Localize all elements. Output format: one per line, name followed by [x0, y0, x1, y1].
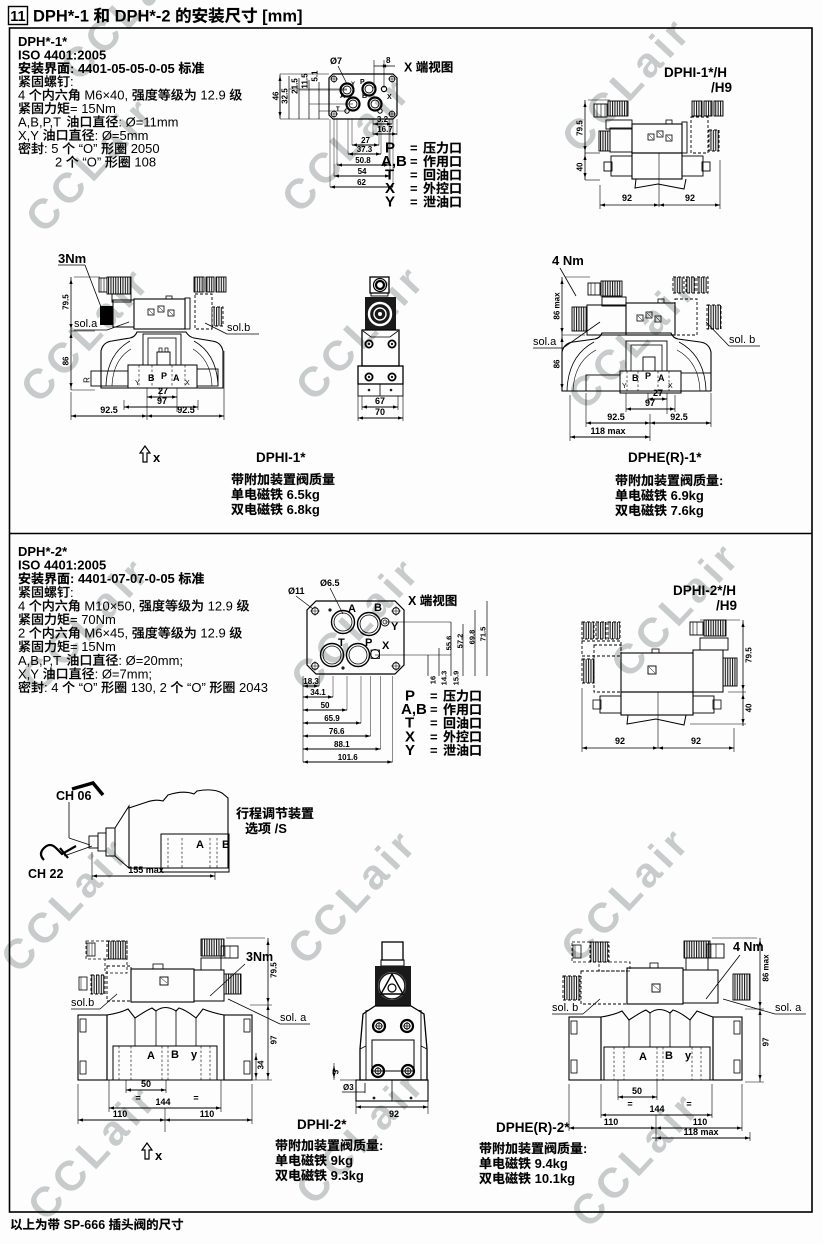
svg-text:67: 67 — [375, 396, 385, 406]
svg-text:T: T — [336, 107, 340, 113]
svg-text:16.7: 16.7 — [377, 125, 393, 134]
svg-text:9.3kg: 9.3kg — [327, 1168, 364, 1183]
svg-text:50: 50 — [141, 1079, 151, 1089]
svg-text:=: = — [410, 195, 418, 210]
svg-text:Ø11: Ø11 — [288, 586, 305, 596]
svg-text:Ø6.5: Ø6.5 — [320, 578, 340, 588]
svg-text:97: 97 — [270, 1035, 279, 1044]
svg-text:DPHI-1*/H: DPHI-1*/H — [664, 65, 727, 80]
svg-text:71.5: 71.5 — [478, 627, 487, 642]
svg-text:X: X — [404, 61, 416, 75]
svg-text:4: 4 — [18, 88, 29, 103]
svg-text:97: 97 — [762, 1037, 771, 1046]
svg-text:144: 144 — [156, 1097, 171, 1107]
svg-text:9kg: 9kg — [327, 1153, 353, 1168]
svg-text:7.6kg: 7.6kg — [667, 503, 704, 518]
svg-text:79.5: 79.5 — [270, 962, 279, 978]
svg-text:79.5: 79.5 — [745, 647, 754, 663]
svg-text:/S: /S — [271, 821, 287, 836]
svg-text:X,Y: X,Y — [18, 666, 42, 681]
svg-text:DPHE(R)-2*: DPHE(R)-2* — [496, 1120, 570, 1135]
svg-text:=: = — [193, 1093, 198, 1103]
svg-text:65.9: 65.9 — [324, 714, 340, 723]
svg-text:92.5: 92.5 — [100, 405, 118, 415]
svg-text:: 4401-07-07-0-05: : 4401-07-07-0-05 — [70, 571, 178, 586]
svg-text:50: 50 — [321, 701, 330, 710]
svg-text:A: A — [147, 1050, 155, 1062]
svg-text:Ø3: Ø3 — [343, 1083, 354, 1092]
svg-text:6.8kg: 6.8kg — [283, 502, 320, 517]
svg-text:A: A — [639, 1051, 647, 1063]
svg-text:92: 92 — [389, 1109, 399, 1119]
svg-text:92: 92 — [691, 736, 701, 746]
svg-text:=: = — [135, 1093, 140, 1103]
svg-text:=: = — [686, 1099, 691, 1109]
svg-text:2043: 2043 — [235, 680, 268, 695]
svg-text:B: B — [222, 839, 230, 851]
svg-text:4 Nm: 4 Nm — [552, 253, 584, 268]
svg-text:92.5: 92.5 — [607, 412, 625, 422]
svg-text:11.5: 11.5 — [301, 73, 310, 89]
svg-text:27: 27 — [158, 386, 168, 396]
svg-text:y: y — [685, 1050, 692, 1062]
svg-text:3.2: 3.2 — [377, 115, 389, 124]
svg-text:CH 22: CH 22 — [28, 867, 63, 881]
svg-text:X: X — [387, 94, 392, 101]
svg-text:79.5: 79.5 — [62, 294, 71, 310]
svg-text:R: R — [83, 377, 92, 383]
svg-text:11: 11 — [10, 9, 25, 25]
svg-text:DPH*-1: DPH*-1 — [33, 8, 94, 26]
svg-text:46: 46 — [272, 91, 281, 100]
svg-text:X: X — [185, 380, 190, 387]
svg-text:X: X — [408, 594, 420, 608]
svg-text::: : — [719, 473, 723, 488]
svg-text:y: y — [191, 1049, 198, 1061]
svg-text:57.2: 57.2 — [455, 634, 464, 649]
svg-text:P: P — [645, 371, 651, 381]
svg-text:B: B — [148, 373, 155, 383]
svg-text:76.6: 76.6 — [329, 727, 345, 736]
svg-text:/H9: /H9 — [716, 598, 737, 613]
svg-text:2: 2 — [18, 626, 29, 641]
svg-text:Y: Y — [405, 742, 415, 759]
svg-text:62: 62 — [357, 178, 366, 187]
svg-text:79.5: 79.5 — [576, 120, 585, 136]
svg-text:P: P — [161, 371, 167, 381]
svg-text:92: 92 — [685, 193, 695, 203]
svg-text:sol.a: sol.a — [533, 336, 557, 348]
svg-text::: : — [70, 585, 74, 600]
svg-text:“O”: “O” — [183, 680, 209, 695]
svg-text:110: 110 — [113, 1109, 128, 1119]
svg-text:B: B — [362, 93, 367, 100]
svg-text:155 max: 155 max — [128, 865, 164, 875]
svg-text:= 15Nm: = 15Nm — [70, 101, 116, 116]
svg-text:Y: Y — [391, 621, 399, 633]
svg-text:4 Nm: 4 Nm — [733, 940, 764, 954]
svg-text:sol. a: sol. a — [775, 1002, 802, 1014]
svg-text:86 max: 86 max — [553, 292, 562, 320]
svg-text:6.9kg: 6.9kg — [667, 488, 704, 503]
svg-text:x: x — [153, 450, 161, 465]
svg-text:[mm]: [mm] — [258, 8, 303, 26]
svg-text:110: 110 — [693, 1117, 708, 1127]
svg-text:69.8: 69.8 — [467, 630, 476, 645]
svg-text:130, 2: 130, 2 — [127, 680, 170, 695]
svg-text:118 max: 118 max — [591, 426, 626, 436]
svg-text:37.3: 37.3 — [357, 145, 373, 154]
svg-text:27: 27 — [361, 136, 370, 145]
svg-text:A: A — [173, 373, 180, 383]
svg-text:110: 110 — [200, 1109, 215, 1119]
svg-text:70: 70 — [375, 407, 385, 417]
svg-text:Y: Y — [622, 383, 627, 390]
svg-text:92: 92 — [622, 193, 632, 203]
svg-text:sol.b: sol.b — [227, 322, 250, 334]
svg-text:97: 97 — [645, 398, 655, 408]
svg-text:A: A — [196, 839, 204, 851]
svg-text:34: 34 — [257, 1060, 266, 1069]
svg-text:8: 8 — [386, 56, 391, 65]
svg-text:Ø7: Ø7 — [330, 56, 342, 66]
svg-text:4: 4 — [18, 598, 29, 613]
svg-text:DPH*-2: DPH*-2 — [110, 8, 175, 26]
svg-text:27: 27 — [653, 388, 663, 398]
svg-text:97: 97 — [157, 396, 167, 406]
svg-text:DPHI-2*/H: DPHI-2*/H — [673, 583, 736, 598]
svg-text:X: X — [382, 640, 390, 652]
svg-text:92.5: 92.5 — [670, 412, 688, 422]
svg-text:3Nm: 3Nm — [246, 950, 273, 964]
svg-text:CH 06: CH 06 — [56, 789, 91, 803]
svg-text::: : — [379, 1138, 383, 1153]
svg-text:40: 40 — [576, 162, 585, 171]
svg-text:14.3: 14.3 — [439, 671, 448, 686]
svg-text:3Nm: 3Nm — [58, 251, 86, 266]
svg-text:B: B — [374, 602, 382, 614]
svg-text:=: = — [430, 743, 438, 758]
svg-text:DPHE(R)-1*: DPHE(R)-1* — [628, 450, 702, 465]
svg-text:110: 110 — [604, 1117, 619, 1127]
svg-text:sol. b: sol. b — [729, 334, 755, 346]
svg-text:16: 16 — [428, 676, 437, 684]
svg-text:DPHI-2*: DPHI-2* — [297, 1117, 347, 1132]
svg-text:x: x — [155, 1148, 163, 1163]
svg-text:DPHI-1*: DPHI-1* — [256, 450, 306, 465]
svg-text:12.9: 12.9 — [204, 598, 237, 613]
svg-text:92.5: 92.5 — [177, 405, 195, 415]
svg-text:50.8: 50.8 — [355, 156, 371, 165]
svg-text:B: B — [665, 1050, 673, 1062]
svg-text:21.5: 21.5 — [291, 78, 300, 94]
svg-text:“O”: “O” — [79, 155, 105, 170]
svg-text:A: A — [340, 93, 345, 100]
svg-text:P: P — [365, 637, 372, 649]
svg-text:A: A — [658, 373, 665, 383]
svg-text:sol. b: sol. b — [552, 1002, 578, 1014]
svg-text:108: 108 — [131, 155, 156, 170]
svg-text:86 max: 86 max — [762, 954, 771, 982]
svg-text:86: 86 — [62, 356, 71, 365]
svg-text:“O”: “O” — [75, 680, 101, 695]
svg-text:SP-666: SP-666 — [60, 1218, 109, 1232]
svg-text:10.1kg: 10.1kg — [531, 1171, 575, 1186]
svg-text:86: 86 — [553, 359, 562, 368]
svg-text:18.3: 18.3 — [303, 677, 319, 686]
svg-text:= 15Nm: = 15Nm — [70, 639, 116, 654]
svg-text:118 max: 118 max — [684, 1127, 719, 1137]
svg-text:X,Y: X,Y — [18, 128, 42, 143]
svg-text:Y: Y — [385, 194, 395, 211]
svg-text:P: P — [360, 79, 365, 86]
svg-text:55.6: 55.6 — [444, 636, 453, 651]
svg-text:sol.a: sol.a — [74, 318, 98, 330]
svg-text:6.5kg: 6.5kg — [283, 487, 320, 502]
svg-text:/H9: /H9 — [711, 80, 732, 95]
svg-text:: 4401-05-05-0-05: : 4401-05-05-0-05 — [70, 61, 178, 76]
svg-text:50: 50 — [632, 1086, 642, 1096]
svg-text:12.9: 12.9 — [197, 88, 230, 103]
svg-text:=: = — [627, 1099, 632, 1109]
svg-text:54: 54 — [358, 167, 367, 176]
svg-text:101.6: 101.6 — [338, 753, 359, 762]
svg-text::: : — [70, 74, 74, 89]
svg-text:2: 2 — [55, 155, 66, 170]
svg-text:sol. a: sol. a — [280, 1012, 307, 1024]
svg-text:: 4: : 4 — [44, 680, 62, 695]
svg-text:40: 40 — [745, 703, 754, 712]
svg-text:Y: Y — [351, 82, 355, 88]
svg-text:92: 92 — [615, 736, 625, 746]
svg-text:15.9: 15.9 — [451, 671, 460, 686]
svg-text:5.1: 5.1 — [311, 70, 320, 82]
svg-text:A: A — [348, 603, 356, 615]
svg-text:sol.b: sol.b — [71, 997, 94, 1009]
svg-text:T: T — [338, 637, 345, 649]
svg-text:144: 144 — [650, 1104, 665, 1114]
svg-text:34.1: 34.1 — [310, 688, 326, 697]
svg-text::: : — [583, 1141, 587, 1156]
svg-text:32.5: 32.5 — [281, 88, 290, 104]
svg-text:12.9: 12.9 — [197, 626, 230, 641]
svg-text:B: B — [171, 1049, 179, 1061]
svg-text:88.1: 88.1 — [334, 740, 350, 749]
svg-text:9.4kg: 9.4kg — [531, 1156, 568, 1171]
